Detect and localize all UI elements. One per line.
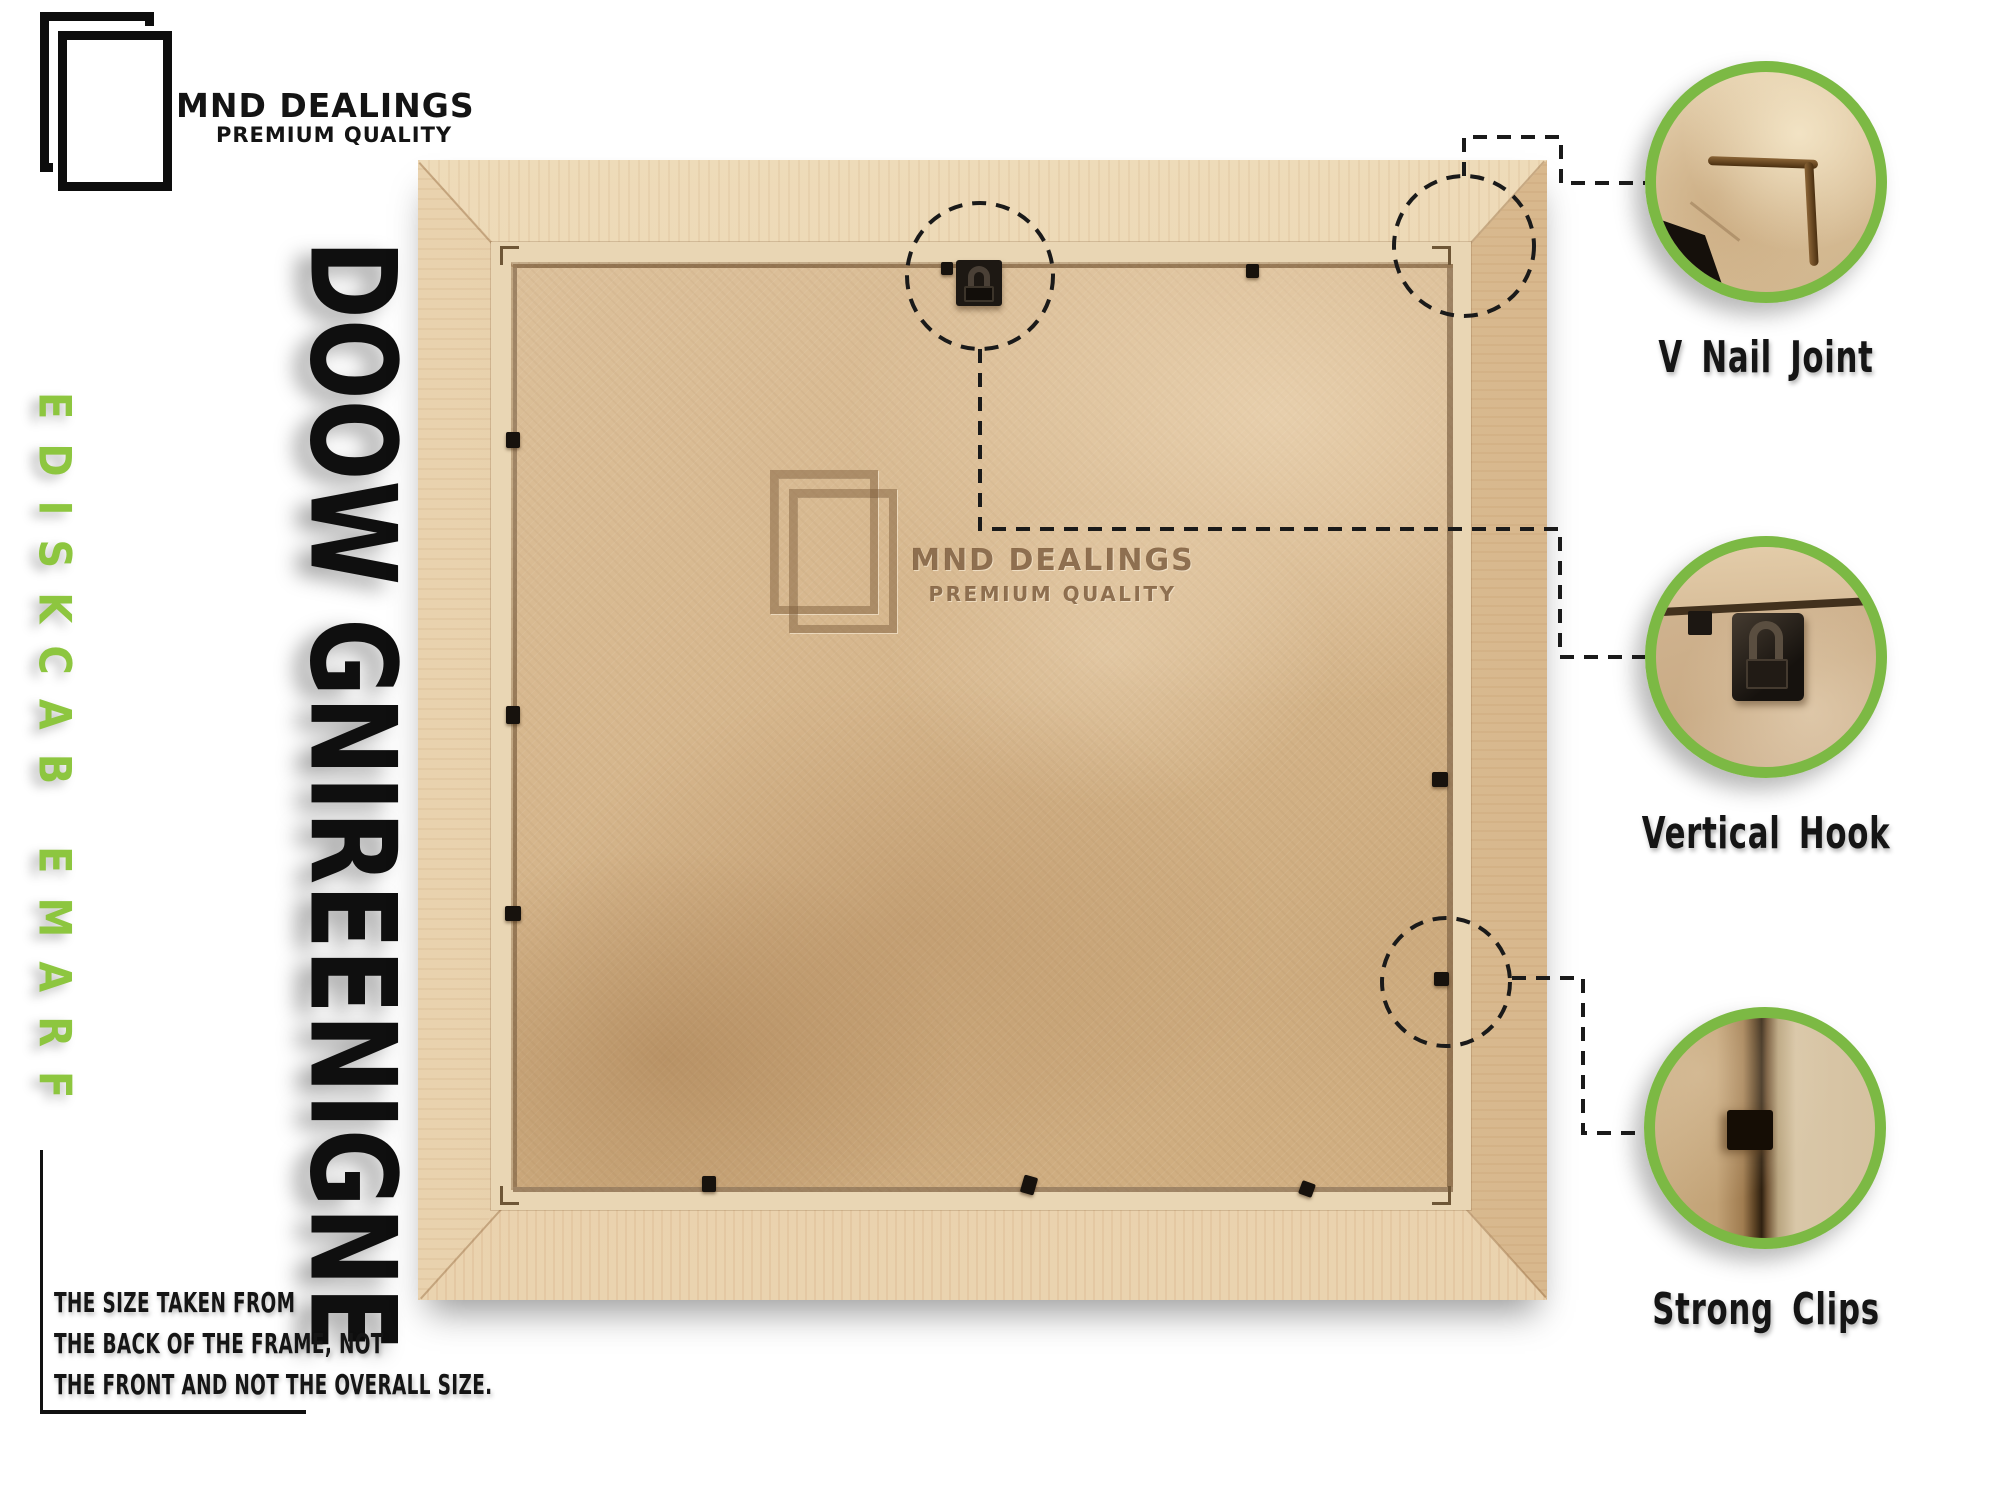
dashed-circle-hook [907, 203, 1053, 349]
callout-connectors [0, 0, 2000, 1500]
connector-strong-clips [1512, 978, 1645, 1133]
dashed-circle-corner [1394, 176, 1534, 316]
connector-vertical-hook [980, 349, 1645, 657]
product-infographic: MND DEALINGS PREMIUM QUALITY EDISKCAB EM… [0, 0, 2000, 1500]
connector-v-nail [1464, 137, 1645, 183]
dashed-circle-clip [1382, 918, 1510, 1046]
